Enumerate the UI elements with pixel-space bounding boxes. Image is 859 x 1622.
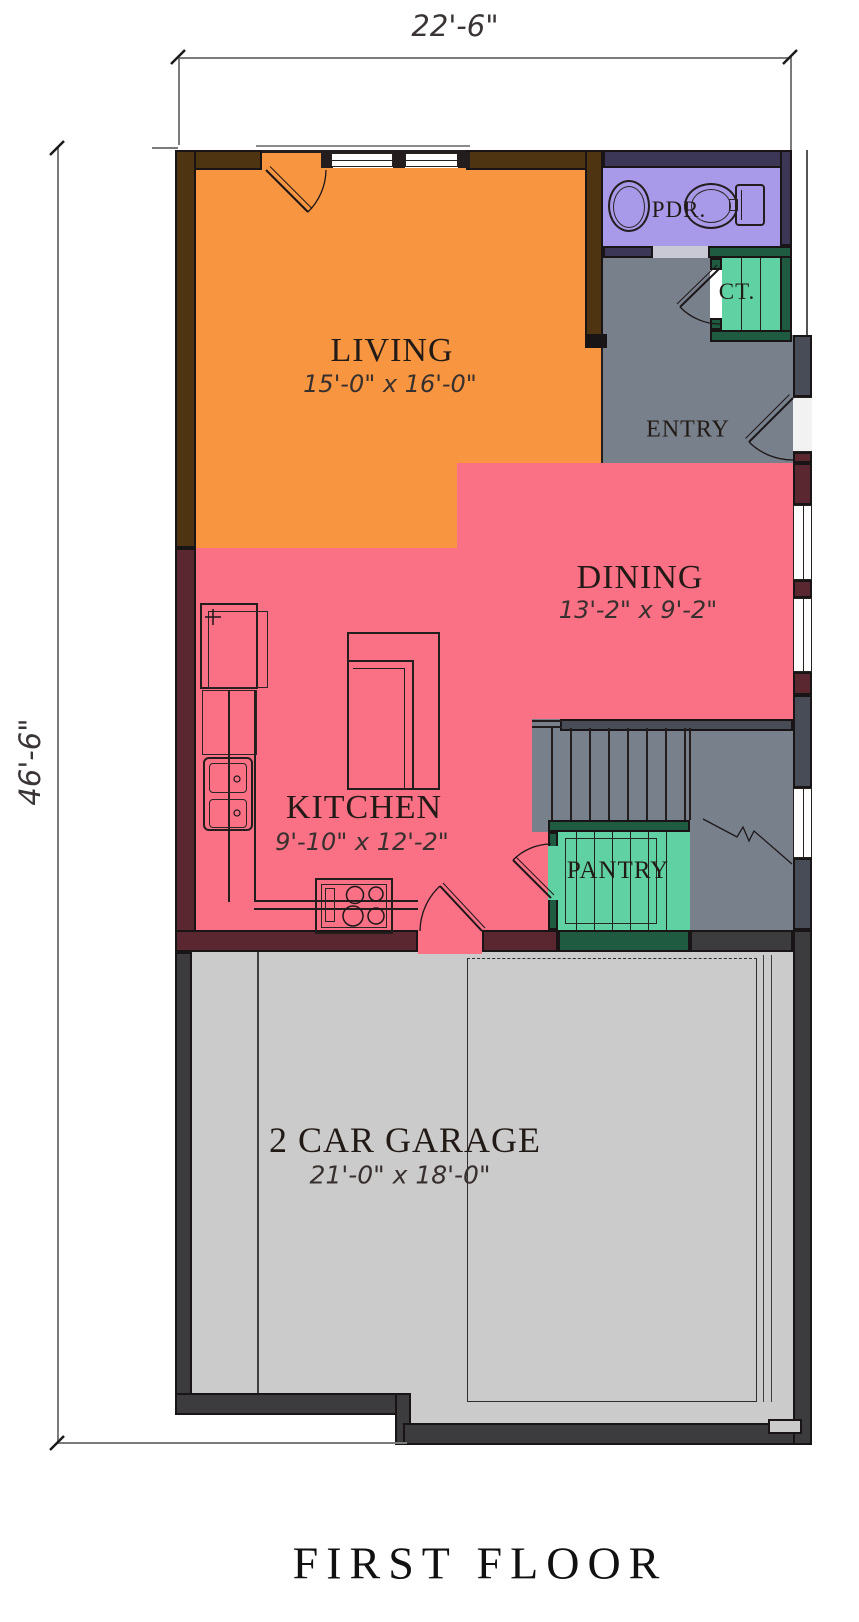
wall-segment	[603, 246, 653, 258]
window-sill-line	[256, 145, 470, 147]
wall-segment	[548, 898, 558, 930]
dining-size-label: 13'-2" x 9'-2"	[559, 596, 717, 624]
wall-segment	[793, 463, 812, 505]
window-jamb	[393, 152, 405, 168]
stair-edge-line	[532, 720, 562, 722]
living-size-label: 15'-0" x 16'-0"	[303, 370, 477, 398]
pantry-door-opening	[548, 846, 558, 900]
wall-segment	[558, 930, 690, 952]
stair-tread	[627, 728, 629, 820]
kitchen-size-label: 9'-10" x 12'-2"	[275, 828, 449, 856]
island-edge	[412, 660, 414, 790]
wall-segment	[793, 672, 812, 695]
stair-stringer	[689, 728, 691, 820]
wall-segment	[403, 1423, 812, 1445]
window-jamb	[458, 152, 470, 168]
garage-wall-notch	[768, 1419, 802, 1434]
living-entry-boundary	[601, 348, 603, 463]
wall-segment	[690, 930, 793, 952]
extension-line	[152, 147, 178, 149]
porch-edge-line	[806, 150, 808, 345]
wall-segment	[793, 580, 812, 598]
garage-door-track	[771, 955, 772, 1402]
stair-tread	[570, 728, 572, 820]
room-living	[196, 463, 457, 548]
front-door-opening	[793, 397, 812, 452]
entry-label: ENTRY	[646, 417, 730, 444]
wall-segment	[793, 335, 812, 397]
island-edge	[347, 660, 413, 662]
counter-edge	[254, 690, 256, 902]
wall-segment	[710, 330, 792, 342]
wall-segment	[560, 719, 793, 731]
wall-segment	[548, 820, 690, 832]
extension-line	[178, 57, 180, 145]
living-label: LIVING	[330, 332, 453, 370]
stair-edge-line	[532, 726, 562, 728]
window	[331, 153, 393, 167]
dining-label: DINING	[577, 559, 704, 597]
closet-shelf	[760, 258, 761, 330]
stair-tread	[608, 728, 610, 820]
window	[793, 505, 812, 580]
wall-segment	[780, 246, 792, 342]
wall-end-cap	[585, 334, 607, 348]
floor-plan: 22'-6" 46'-6" LIVING 15'-0" x 16'-0" DIN…	[0, 0, 859, 1622]
wall-segment	[793, 695, 812, 788]
toilet-tank	[735, 184, 765, 226]
closet-label: CT.	[719, 279, 755, 305]
wall-segment	[780, 150, 792, 246]
wall-segment	[710, 258, 722, 270]
window	[793, 788, 812, 858]
extension-line	[790, 57, 792, 150]
dimension-line-left	[57, 148, 59, 1443]
sink-basin	[209, 763, 247, 793]
powder-label: PDR.	[652, 197, 707, 223]
dimension-top-label: 22'-6"	[411, 9, 498, 43]
stair-tread	[589, 728, 591, 820]
room-entry	[603, 335, 793, 463]
wall-segment	[175, 150, 196, 548]
wall-segment	[482, 930, 558, 952]
wall-segment	[175, 548, 196, 952]
stair-landing	[690, 719, 793, 930]
powder-sink	[613, 186, 645, 228]
wall-segment	[603, 150, 792, 168]
toilet-tank-line	[741, 190, 742, 220]
kitchen-garage-door-opening	[418, 930, 482, 954]
stair-tread	[551, 728, 553, 820]
kitchen-label: KITCHEN	[286, 789, 442, 827]
garage-size-label: 21'-0" x 18'-0"	[310, 1161, 491, 1190]
plan-title: FIRST FLOOR	[293, 1537, 668, 1590]
garage-door-track	[763, 955, 764, 1402]
wall-segment	[466, 150, 603, 170]
island-edge	[353, 668, 405, 669]
sink-basin	[209, 799, 247, 828]
room-living	[196, 168, 585, 348]
dimension-line-top	[178, 57, 790, 59]
wall-segment	[585, 150, 603, 348]
window	[405, 153, 458, 167]
pantry-label: PANTRY	[567, 857, 669, 885]
kitchen-island	[347, 632, 440, 790]
wall-segment	[793, 930, 812, 1445]
wall-segment	[793, 858, 812, 930]
refrigerator	[208, 611, 268, 688]
stair-tread	[665, 728, 667, 820]
garage-parking-outline	[467, 958, 757, 1402]
wall-segment	[175, 1393, 407, 1415]
stair-tread	[684, 728, 686, 820]
living-door-opening	[262, 153, 322, 170]
stove-panel	[325, 888, 335, 922]
powder-door-threshold	[653, 246, 708, 258]
kitchen-counter	[202, 690, 257, 755]
stair-tread	[646, 728, 648, 820]
garage-floor-line	[257, 952, 259, 1393]
window	[793, 598, 812, 672]
wall-segment	[710, 318, 722, 330]
extension-line	[57, 1442, 407, 1444]
wall-segment	[175, 952, 192, 1415]
garage-label: 2 CAR GARAGE	[269, 1119, 541, 1161]
wall-segment	[793, 452, 812, 463]
toilet-hinge	[729, 199, 738, 211]
room-hall	[603, 258, 710, 335]
wall-segment	[708, 246, 792, 258]
island-edge	[404, 668, 405, 790]
dimension-left-label: 46'-6"	[13, 718, 47, 805]
